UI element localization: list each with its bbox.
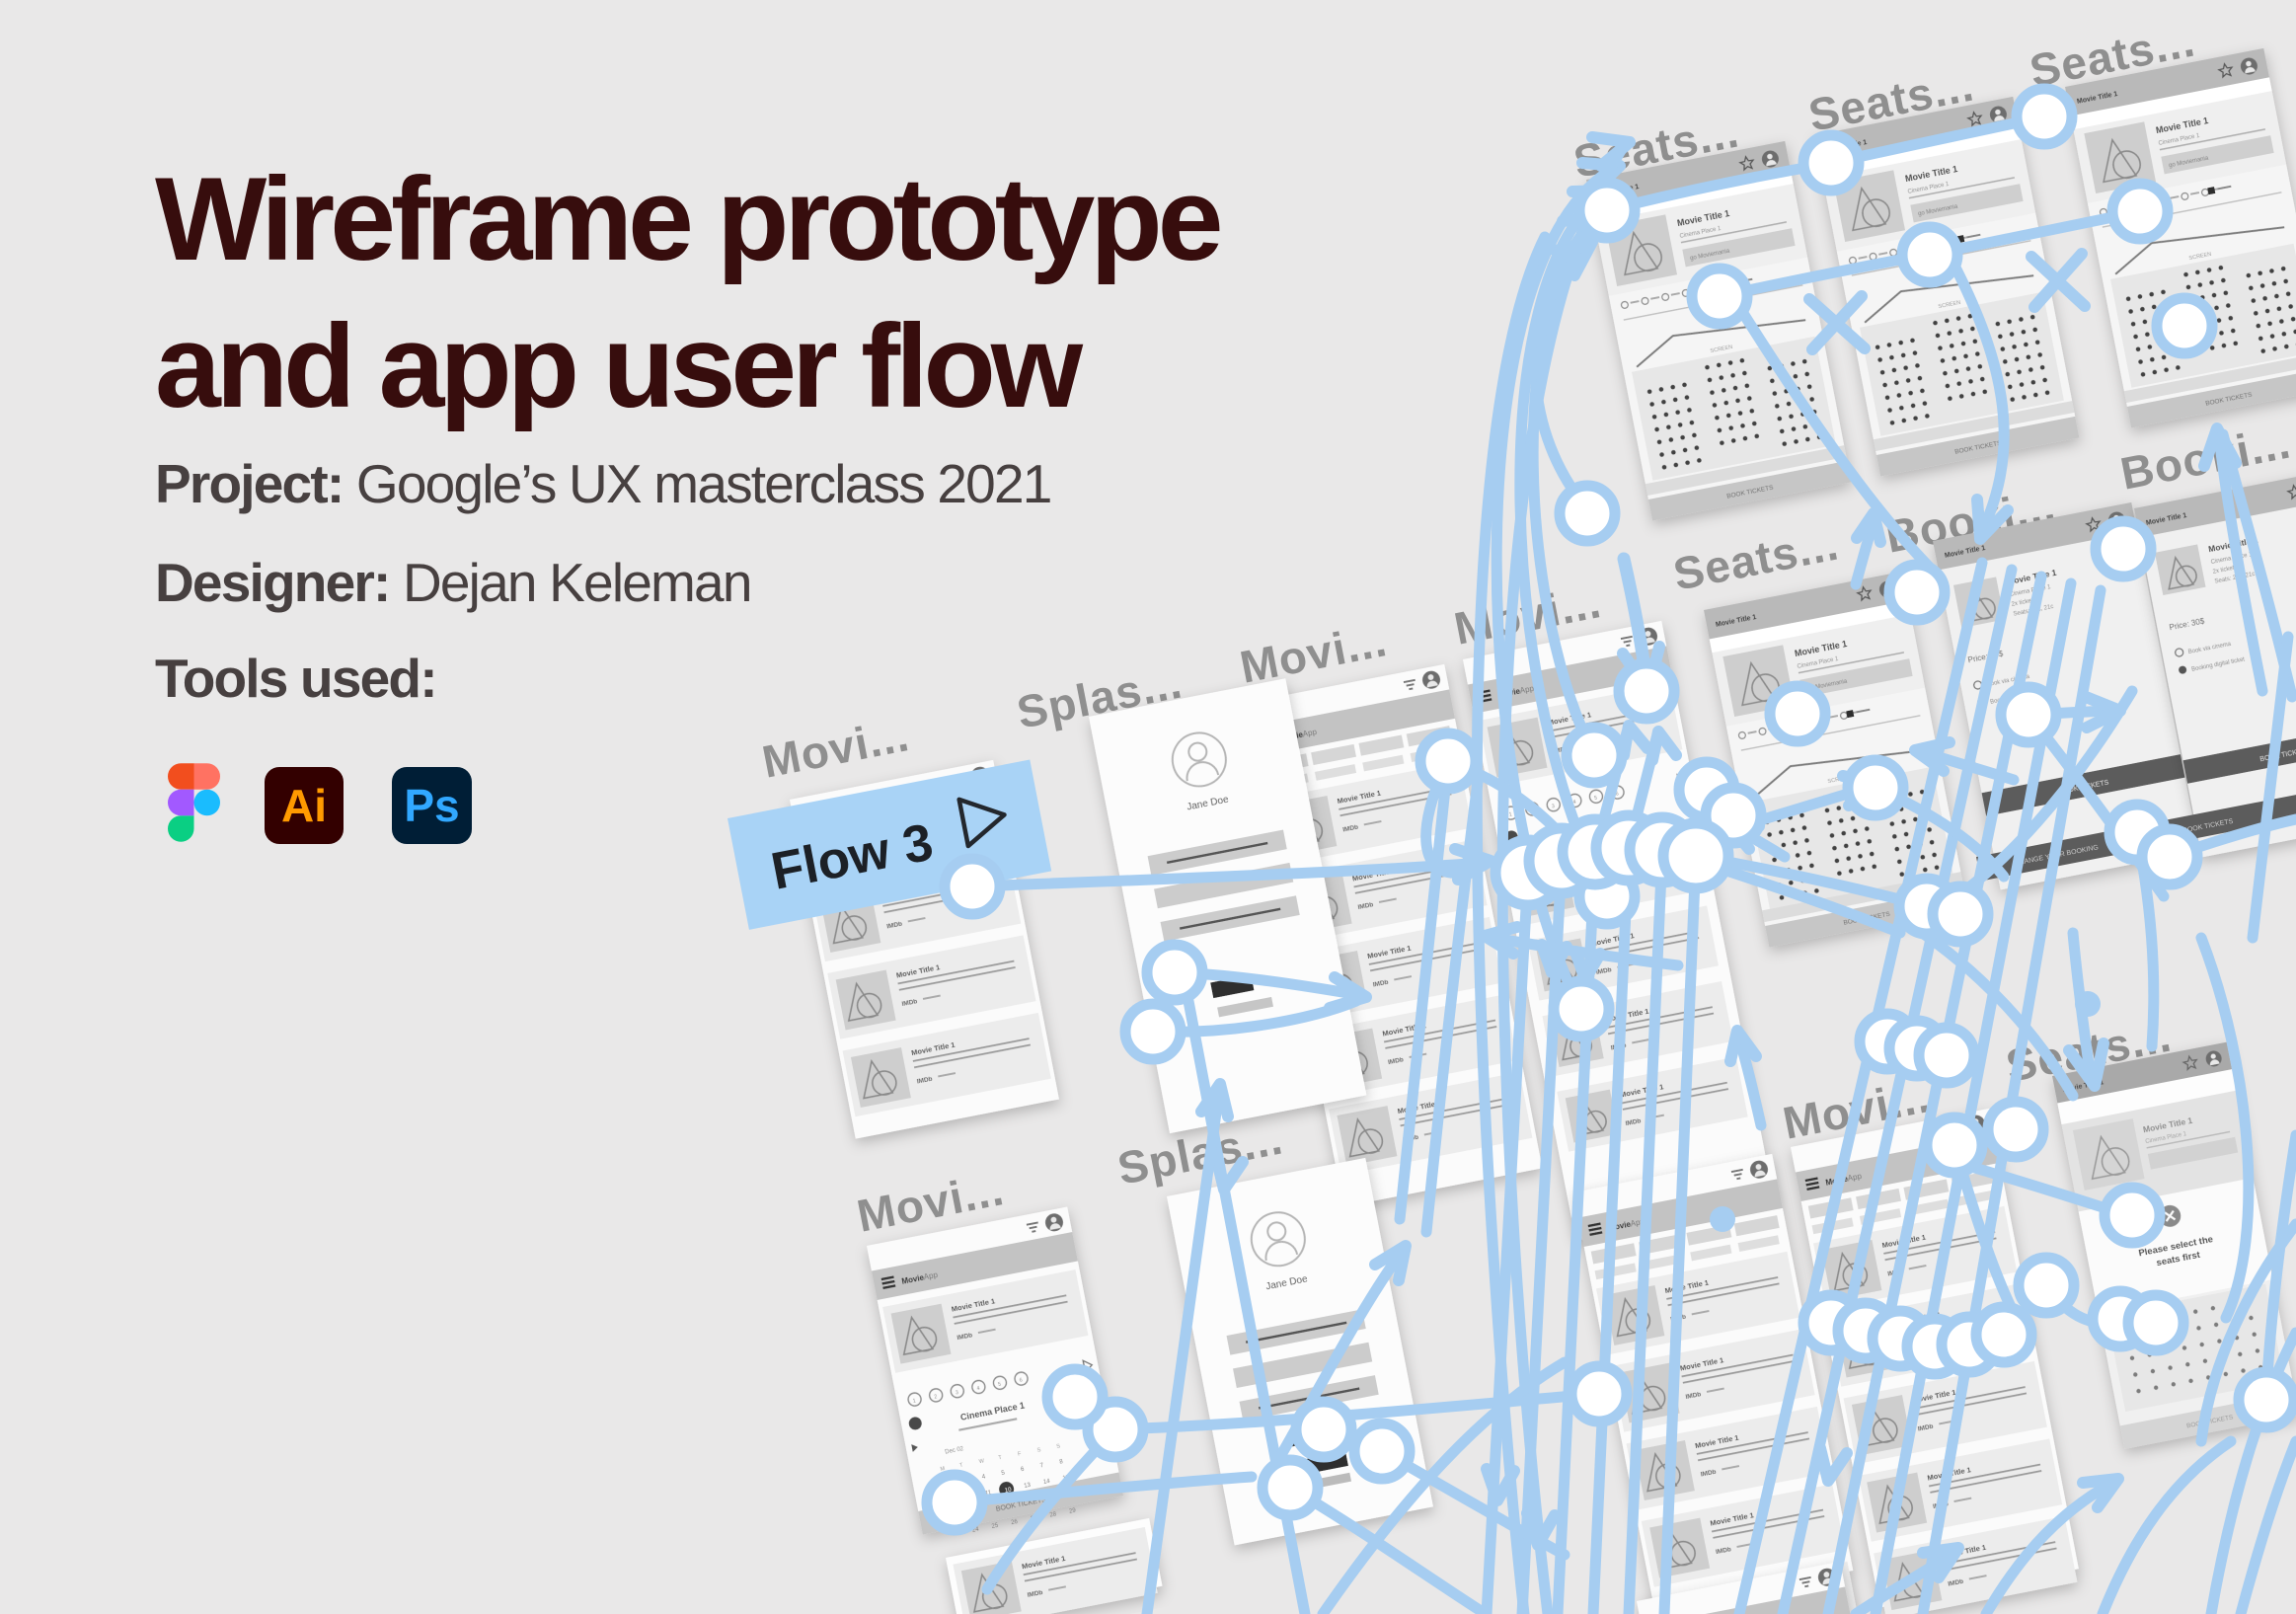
svg-text:Seats...: Seats... — [1669, 518, 1843, 600]
svg-text:Movi...: Movi... — [758, 709, 913, 788]
svg-text:29: 29 — [1069, 1507, 1077, 1514]
svg-text:28: 28 — [1049, 1511, 1057, 1518]
svg-text:26: 26 — [1011, 1519, 1019, 1526]
svg-text:25: 25 — [991, 1523, 999, 1530]
